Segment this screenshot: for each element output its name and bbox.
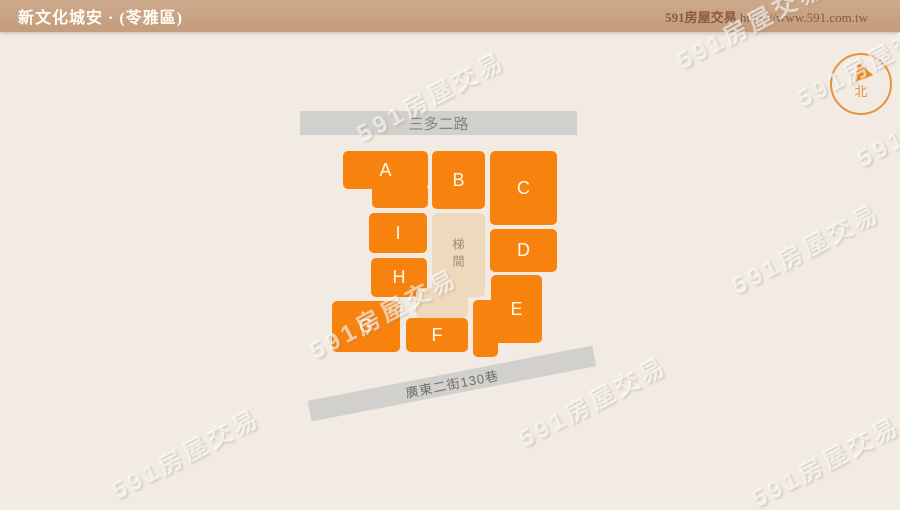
watermark-text: 591房屋交易 [724, 193, 885, 301]
stairwell-block: 梯間 [416, 213, 485, 318]
unit-label-c: C [490, 151, 557, 225]
unit-block-a[interactable]: A [343, 151, 428, 208]
unit-block-c[interactable]: C [490, 151, 557, 225]
unit-label-e: E [491, 275, 542, 343]
stairwell-label: 梯間 [432, 213, 485, 297]
unit-label-f: F [406, 318, 468, 352]
site-plan-page: 新文化城安 · (苓雅區) 591房屋交易 https://www.591.co… [0, 0, 900, 510]
unit-block-g[interactable]: G [332, 301, 400, 352]
brand-url: 591房屋交易 https://www.591.com.tw [665, 7, 900, 26]
unit-block-d[interactable]: D [490, 229, 557, 272]
north-arrow-icon [849, 59, 874, 82]
watermark-text: 591房屋交易 [744, 406, 900, 510]
brand-link: https://www.591.com.tw [740, 10, 868, 25]
road-bottom: 廣東二街130巷 [308, 346, 597, 422]
header-bar: 新文化城安 · (苓雅區) 591房屋交易 https://www.591.co… [0, 0, 900, 32]
unit-block-f[interactable]: F [406, 318, 468, 352]
brand-label: 591房屋交易 [665, 10, 737, 25]
page-title: 新文化城安 · (苓雅區) [0, 4, 183, 28]
unit-block-b[interactable]: B [432, 151, 485, 209]
road-bottom-label: 廣東二街130巷 [404, 365, 501, 402]
unit-label-b: B [432, 151, 485, 209]
road-top-label: 三多二路 [408, 113, 468, 134]
unit-label-d: D [490, 229, 557, 272]
north-label: 北 [854, 81, 867, 100]
unit-label-g: G [332, 301, 400, 352]
road-top: 三多二路 [300, 111, 577, 135]
compass: 北 [830, 53, 892, 115]
unit-label-a: A [343, 151, 428, 189]
watermark-text: 591房屋交易 [104, 398, 265, 506]
